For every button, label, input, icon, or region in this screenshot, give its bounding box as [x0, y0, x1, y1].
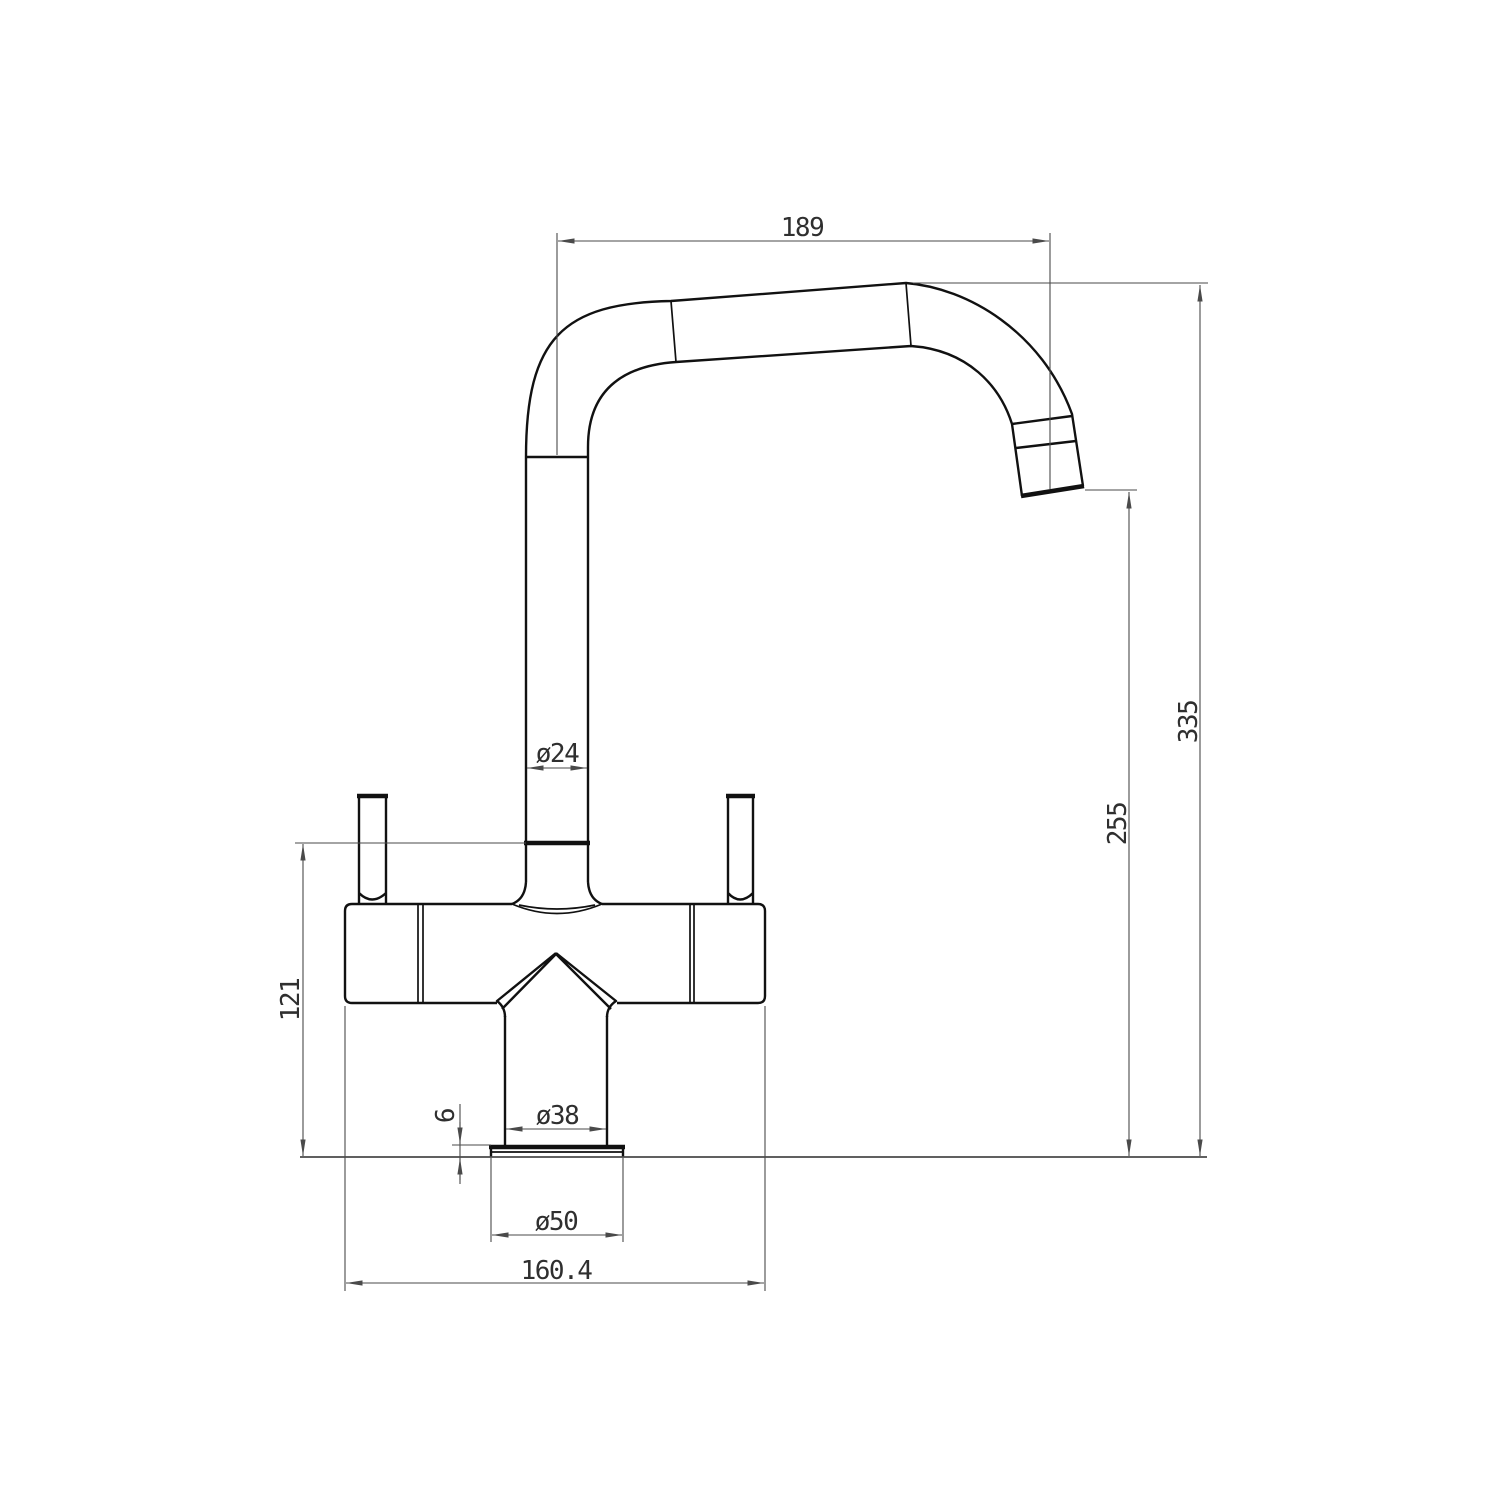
spout-sleeve-joint-lines [671, 283, 911, 362]
label-shank-diameter: ø38 [536, 1101, 578, 1131]
left-handle-rod [359, 797, 386, 904]
label-joint-height: 121 [276, 979, 306, 1021]
dimension-overall-height [913, 283, 1208, 1156]
dimension-annotations [295, 233, 1208, 1291]
extension-lines-189 [557, 233, 1050, 489]
left-handle [357, 796, 388, 904]
spout-aerator-lines [1012, 416, 1076, 448]
label-spout-reach: 189 [781, 213, 823, 243]
label-flange-thickness: 6 [431, 1109, 461, 1123]
label-body-width: 160.4 [521, 1256, 593, 1286]
technical-drawing-canvas: 189 335 255 ø24 121 ø38 6 ø50 160.4 [0, 0, 1500, 1500]
dimension-spout-reach [557, 233, 1050, 489]
label-overall-height: 335 [1174, 701, 1204, 743]
body-cone-transition [497, 953, 616, 1017]
label-outlet-height: 255 [1103, 803, 1133, 845]
faucet-outline [345, 283, 1084, 1157]
dimension-labels: 189 335 255 ø24 121 ø38 6 ø50 160.4 [276, 213, 1204, 1286]
spout-outlet-edge [1021, 486, 1084, 496]
base-flange [489, 1146, 625, 1157]
spout-tube-outline [526, 283, 1083, 496]
faucet-technical-drawing: 189 335 255 ø24 121 ø38 6 ø50 160.4 [0, 0, 1500, 1500]
riser-column [512, 457, 602, 904]
right-handle [726, 796, 755, 904]
right-handle-rod [728, 797, 753, 904]
label-flange-diameter: ø50 [535, 1207, 577, 1237]
dimension-joint-height [295, 843, 526, 1156]
riser-base-saddle-arcs [512, 904, 602, 914]
label-tube-diameter: ø24 [536, 739, 579, 769]
